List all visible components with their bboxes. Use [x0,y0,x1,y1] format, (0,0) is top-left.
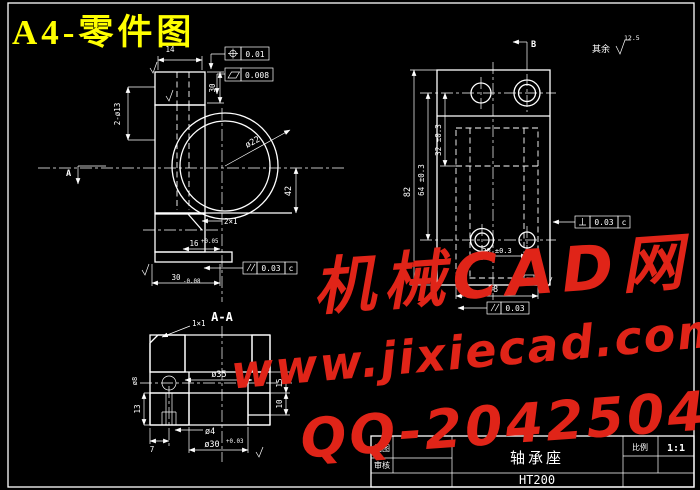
dim-counterbore: ø8 [131,377,139,385]
scale-value: 1:1 [667,443,685,454]
fcf-perpendicular: 0.03 c [553,216,630,228]
dim-step-upper: 15 [275,378,284,387]
material: HT200 [519,473,555,487]
parallelism-icon [491,304,499,311]
dim-step-lower: 10 [275,399,284,409]
front-view: A 14 30 2-ø13 0.01 0.008 [38,45,345,302]
dim-base-width: 30 [171,273,181,282]
dim-small-hole: ø4 [205,427,215,437]
roughness-icon [616,40,631,54]
fcf-position-value: 0.01 [245,50,264,59]
dim-bore-lower: ø30 [204,440,219,450]
section-view: A-A 1×1 ø35 15 10 13 ø8 7 ø4 [131,310,292,462]
datum-b-label: B [527,277,531,285]
section-chamfer-note: 1×1 [192,319,206,328]
fcf-parallel-front: 0.03 c [204,262,297,274]
chamfer-note: 2×1 [224,217,238,226]
fcf-position: 0.01 [211,47,269,69]
dim-boss-height: 30 [208,83,217,93]
general-roughness-value: 12.5 [624,34,640,42]
dim-height: 82 [403,187,413,197]
title-block: 制图 审核 轴承座 HT200 比例 1:1 [371,436,694,487]
general-roughness-prefix: 其余 [592,43,610,55]
side-view: B 82 64 ±0.3 32 ±0.3 20 ±0.3 38 0.03 [403,40,630,314]
fcf-flatness-value: 0.008 [245,71,269,80]
titleblock-drawn-label: 制图 [374,443,390,453]
roughness-icon [150,62,157,73]
border-frame [8,3,694,487]
dim-hole-span: 64 ±0.3 [417,164,426,196]
parallelism-icon [247,264,255,271]
dim-bore-lower-tol: +0.03 [226,439,244,445]
section-arrow-a-label: A [66,169,71,179]
dim-holes: 2-ø13 [113,103,122,126]
dim-center-height: 42 [284,186,294,196]
roughness-icon [256,447,263,457]
general-roughness-note: 其余 12.5 [592,34,640,55]
perpendicularity-icon [579,218,586,225]
section-arrow-b-label: B [531,40,536,50]
fcf-flatness: 0.008 [217,68,273,94]
position-tolerance-icon [228,49,238,59]
scale-label: 比例 [632,442,648,452]
drawing-canvas: A 14 30 2-ø13 0.01 0.008 [0,0,700,490]
dim-hole-depth: 13 [133,404,142,413]
titleblock-checked-label: 审核 [374,460,390,470]
section-view-label: A-A [211,310,233,324]
fcf-parallel-side: 0.03 [458,302,529,314]
roughness-icon [166,90,173,101]
fcf-parallel-value: 0.03 [261,264,280,273]
dim-hub-width: 16 [189,239,199,248]
fcf-perpendicular-datum: c [622,218,627,227]
dim-slot: 20 ±0.3 [482,247,512,255]
dim-width: 38 [488,285,498,295]
dim-bore-upper: ø35 [211,370,226,380]
dim-hub-width-tol: +0.05 [201,239,219,245]
flatness-icon [228,72,240,78]
cad-drawing-screenshot: A 14 30 2-ø13 0.01 0.008 [0,0,700,490]
part-name: 轴承座 [510,449,564,467]
dim-base-width-tol: -0.08 [183,279,201,285]
dim-upper-span: 32 ±0.3 [434,124,443,156]
fcf-parallel-side-value: 0.03 [505,304,524,313]
dim-hole-offset: 7 [150,445,155,454]
fcf-perpendicular-value: 0.03 [594,218,613,227]
roughness-icon [142,264,149,275]
fcf-parallel-datum: c [289,264,294,273]
page-title: A4-零件图 [12,4,195,55]
